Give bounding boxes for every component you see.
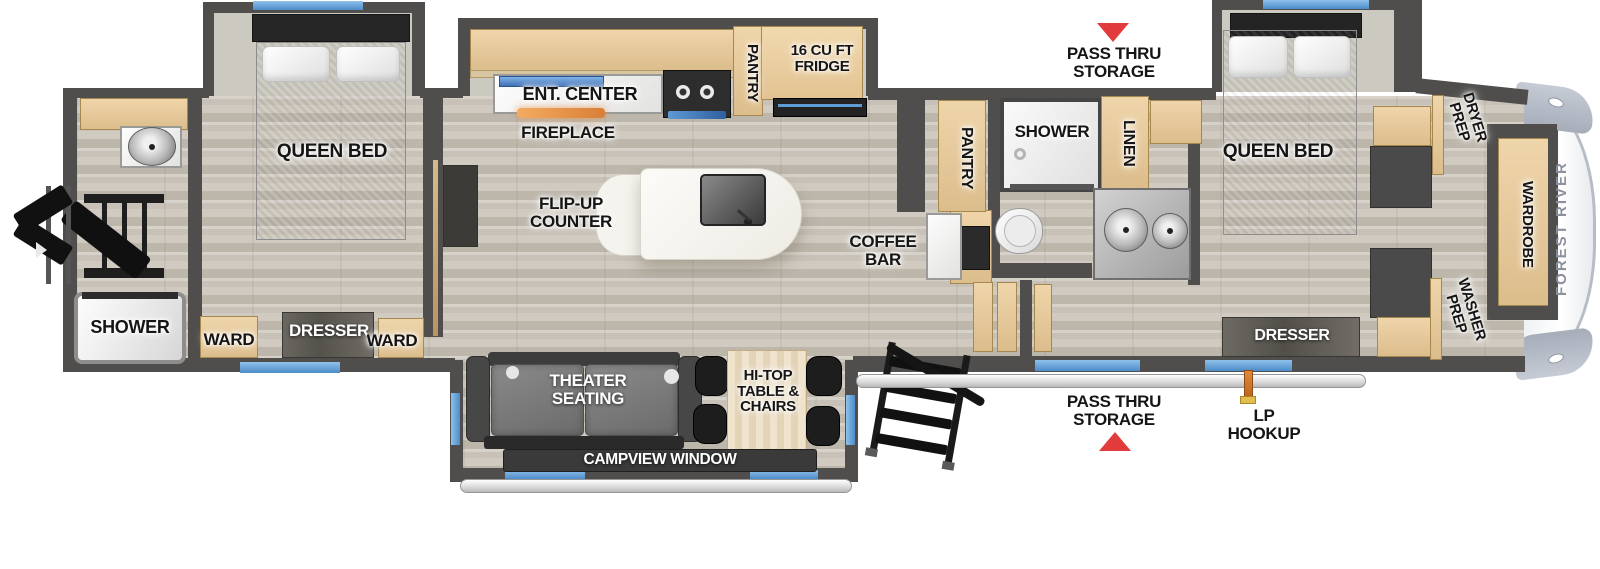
fridge-counter-trim bbox=[778, 104, 862, 107]
hall-step-1 bbox=[973, 282, 993, 352]
bed-left-headboard bbox=[252, 14, 410, 42]
ext-step-arrow-icon bbox=[36, 242, 47, 258]
sofa-cupholder-icon-2 bbox=[664, 369, 679, 384]
main-shower bbox=[1000, 98, 1102, 192]
bed-left-pillow-1 bbox=[262, 46, 330, 82]
label-main-shower: SHOWER bbox=[1010, 123, 1094, 141]
hall-step-2 bbox=[997, 282, 1017, 352]
label-rear-shower: SHOWER bbox=[88, 318, 172, 337]
kitchen-hall-wall-stub bbox=[897, 98, 925, 212]
slide-living-window-left bbox=[451, 393, 460, 445]
main-shower-drain-icon bbox=[1014, 148, 1026, 160]
bedroom-right-cabinet-upper bbox=[1370, 146, 1432, 208]
burner-icon-1 bbox=[676, 85, 690, 99]
rear-sink-drain-icon bbox=[149, 144, 155, 150]
hall-step-3 bbox=[1034, 284, 1052, 352]
label-coffee-bar: COFFEE BAR bbox=[846, 233, 920, 268]
label-dresser-right: DRESSER bbox=[1250, 328, 1334, 345]
main-shower-door bbox=[1010, 184, 1094, 190]
dryer-prep-board bbox=[1432, 95, 1444, 175]
ext-step-slab-2 bbox=[13, 216, 74, 265]
bedroom-left-window-bottom bbox=[240, 362, 340, 373]
label-ward-left: WARD bbox=[200, 331, 258, 349]
label-wardrobe: WARDROBE bbox=[1511, 176, 1535, 272]
label-pantry-hall: PANTRY bbox=[948, 112, 974, 204]
label-ward-right: WARD bbox=[364, 332, 420, 350]
bath-wall-bottom bbox=[988, 263, 1092, 278]
label-lp-hookup: LP HOOKUP bbox=[1222, 407, 1306, 442]
label-dresser-left: DRESSER bbox=[284, 322, 374, 340]
rear-exterior-steps bbox=[18, 186, 74, 286]
entry-step-rung-3 bbox=[880, 407, 953, 429]
bedroom-left-closet bbox=[443, 165, 478, 247]
bedroom-left-pocket-door bbox=[433, 160, 438, 336]
slide-bedroom-left-wall-right bbox=[412, 2, 425, 97]
bath-corner-shelf bbox=[1150, 100, 1202, 144]
cooktop bbox=[663, 70, 731, 118]
label-linen: LINEN bbox=[1112, 102, 1136, 184]
fridge-counter bbox=[773, 98, 867, 117]
hi-top-chair-1 bbox=[695, 356, 729, 396]
top-wall-rear bbox=[63, 88, 209, 98]
awning-tube-bottom bbox=[460, 479, 852, 493]
label-pantry-kitchen: PANTRY bbox=[736, 31, 760, 115]
burner-icon-2 bbox=[700, 85, 714, 99]
bed-right-pillow-2 bbox=[1293, 36, 1351, 78]
label-campview-window: CAMPVIEW WINDOW bbox=[560, 452, 760, 468]
dresser-right-side-cabinet bbox=[1377, 317, 1433, 357]
bed-right-pillow-1 bbox=[1228, 36, 1288, 78]
label-brand-forest-river: FOREST RIVER bbox=[1554, 138, 1582, 320]
sofa-arm-left bbox=[466, 356, 490, 442]
wardrobe-frame-bottom bbox=[1487, 306, 1557, 320]
island-sink bbox=[700, 174, 766, 226]
slide-bedroom-right-wall-left bbox=[1212, 0, 1222, 92]
label-theater-seating: THEATER SEATING bbox=[532, 372, 644, 407]
pass-thru-arrow-up-icon bbox=[1099, 432, 1131, 451]
slide-bedroom-left-wall-left bbox=[203, 2, 214, 97]
vanity-sink-2-drain-icon bbox=[1167, 228, 1173, 234]
label-hi-top: HI-TOP TABLE & CHAIRS bbox=[730, 368, 806, 415]
sofa-cupholder-icon-1 bbox=[506, 366, 519, 379]
hall-steps-wall bbox=[1020, 280, 1032, 358]
fireplace-glow bbox=[517, 108, 605, 118]
rear-interior-stairs bbox=[84, 194, 164, 280]
label-ent-center: ENT. CENTER bbox=[500, 85, 660, 104]
lp-connector bbox=[1240, 396, 1256, 404]
entry-step-foot-2 bbox=[942, 461, 955, 471]
label-queen-bed-left: QUEEN BED bbox=[276, 142, 388, 162]
label-pass-thru-bottom: PASS THRU STORAGE bbox=[1060, 393, 1168, 428]
coffee-bar-appliance bbox=[926, 213, 962, 280]
toilet-seat bbox=[1004, 215, 1036, 247]
vanity-sink-1 bbox=[1104, 208, 1148, 252]
label-fireplace: FIREPLACE bbox=[516, 124, 620, 142]
nightstand-shelf bbox=[1373, 106, 1431, 146]
label-queen-bed-right: QUEEN BED bbox=[1222, 142, 1334, 162]
slide-living-window-right bbox=[846, 395, 855, 445]
rv-floorplan: SHOWER QUEEN BED WARD DRESSER WARD ENT. … bbox=[0, 0, 1600, 569]
label-pass-thru-top: PASS THRU STORAGE bbox=[1060, 45, 1168, 80]
hi-top-chair-4 bbox=[806, 406, 840, 446]
rear-shower-rail bbox=[82, 292, 178, 299]
vanity-sink-2 bbox=[1152, 213, 1188, 249]
oven-window bbox=[668, 111, 726, 119]
vanity-sink-1-drain-icon bbox=[1123, 227, 1129, 233]
entry-step-foot-1 bbox=[865, 447, 878, 457]
hi-top-chair-2 bbox=[693, 404, 727, 444]
pass-thru-arrow-down-icon bbox=[1097, 23, 1129, 42]
rear-bath-sink bbox=[128, 127, 176, 166]
label-flip-up-counter: FLIP-UP COUNTER bbox=[516, 195, 626, 230]
bottom-wall-window-1 bbox=[1035, 360, 1140, 371]
hi-top-chair-3 bbox=[806, 356, 842, 396]
bed-left-pillow-2 bbox=[336, 46, 400, 82]
sofa-base bbox=[484, 436, 684, 449]
label-fridge: 16 CU FT FRIDGE bbox=[782, 43, 862, 74]
bedroom-right-window bbox=[1263, 0, 1369, 9]
awning-tube-right bbox=[856, 374, 1366, 388]
bedroom-right-cabinet-lower bbox=[1370, 248, 1432, 318]
entry-step-rung-4 bbox=[875, 433, 948, 455]
bedroom-left-window bbox=[253, 1, 363, 10]
